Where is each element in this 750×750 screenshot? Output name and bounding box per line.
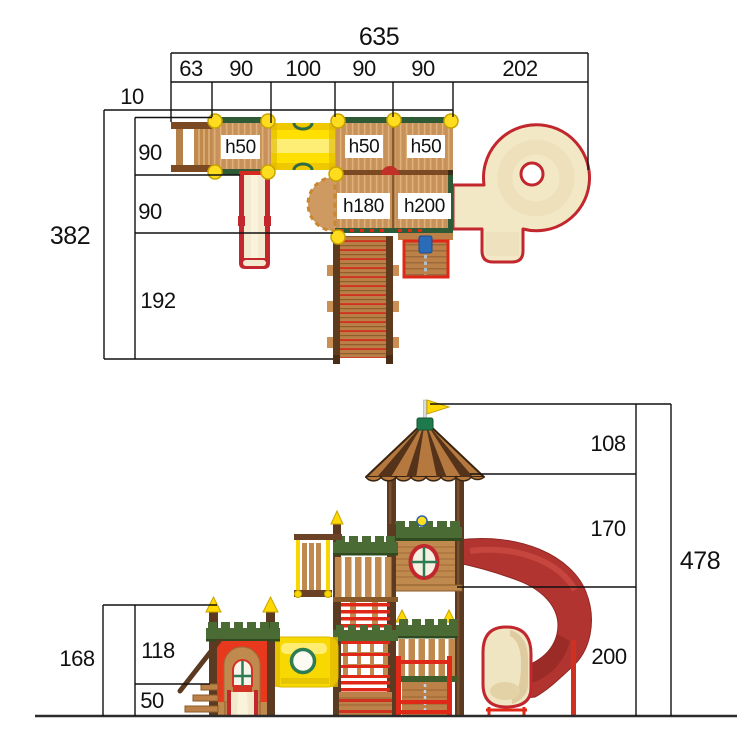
plan-tube <box>271 123 335 170</box>
plan-small-slide <box>238 175 271 269</box>
dim-118: 118 <box>141 638 175 663</box>
elev-roof-cap <box>417 418 433 430</box>
plan-entry-steps <box>171 122 212 172</box>
plan-spiral-slide <box>453 125 590 262</box>
plan-balcony-halfcircle <box>308 177 335 231</box>
dim-seg-90a: 90 <box>229 56 253 81</box>
elev-crawl-tube <box>271 637 338 687</box>
elev-big-tower-parapet <box>393 516 462 541</box>
elev-lower-tower <box>396 610 458 716</box>
label-h200: h200 <box>404 196 445 217</box>
elev-big-tower-panel <box>393 541 462 591</box>
label-h180: h180 <box>343 196 384 217</box>
dim-50: 50 <box>140 688 164 713</box>
dim-108: 108 <box>590 431 625 456</box>
elev-climb-lattice <box>341 641 390 692</box>
label-h50-2: h50 <box>349 137 380 158</box>
label-h50-3: h50 <box>411 137 442 158</box>
elev-slide-exit-mouth <box>483 627 531 716</box>
dim-478: 478 <box>680 547 720 575</box>
plan-pole-clamp <box>419 236 432 253</box>
dim-depth-192: 192 <box>140 288 175 313</box>
plan-view: h50 h50 h50 h180 h200 635 63 90 100 90 9… <box>50 23 590 364</box>
label-h50-1: h50 <box>225 137 256 158</box>
plan-fireman-pole-platform <box>398 233 453 277</box>
elev-tube-porthole <box>292 650 315 673</box>
dim-seg-90b: 90 <box>352 56 376 81</box>
drawing-canvas: h50 h50 h50 h180 h200 635 63 90 100 90 9… <box>0 0 750 750</box>
elev-flag-pole <box>424 400 427 420</box>
dim-total-depth: 382 <box>50 222 90 250</box>
dim-depth-90b: 90 <box>138 199 162 224</box>
plan-access-ramp <box>327 236 399 364</box>
dim-seg-100: 100 <box>285 56 320 81</box>
elev-finial-ball <box>417 516 427 526</box>
dim-depth-90a: 90 <box>138 140 162 165</box>
elev-flag <box>427 400 449 414</box>
dim-seg-63: 63 <box>179 56 203 81</box>
elevation-view: 108 170 200 478 168 118 50 <box>35 400 737 716</box>
dim-168: 168 <box>59 646 94 671</box>
dim-total-width: 635 <box>359 23 399 51</box>
dim-seg-202: 202 <box>502 56 537 81</box>
technical-drawing-playground: h50 h50 h50 h180 h200 635 63 90 100 90 9… <box>0 0 750 750</box>
dim-200: 200 <box>591 644 626 669</box>
dim-offset-10: 10 <box>120 84 144 109</box>
dim-seg-90c: 90 <box>411 56 435 81</box>
dim-170: 170 <box>590 516 625 541</box>
elev-slide-support-pole <box>571 640 576 716</box>
